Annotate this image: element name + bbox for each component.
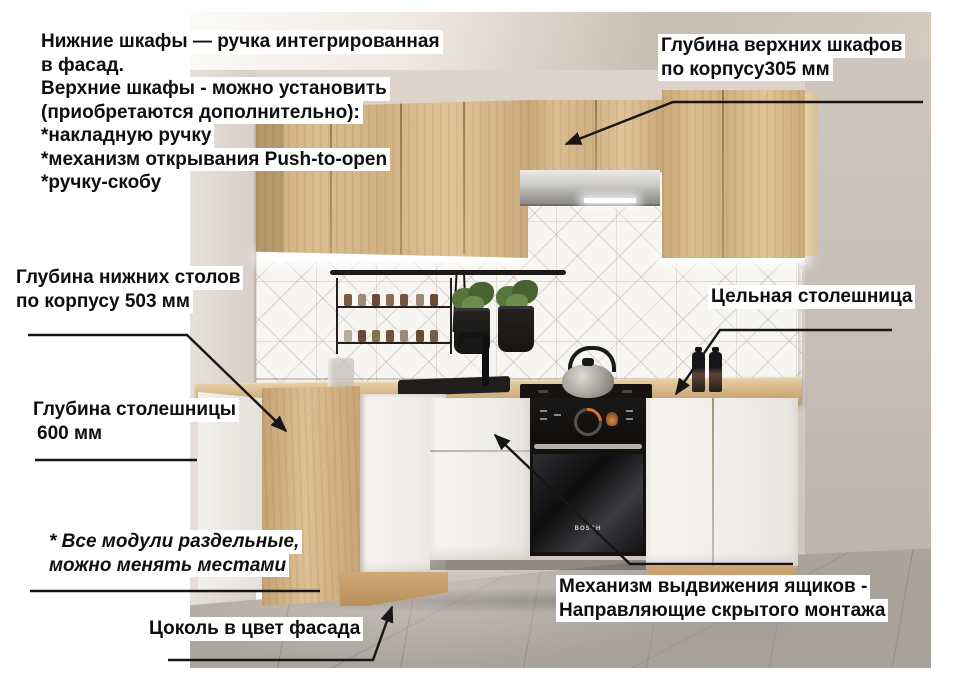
upper-cabinet-right bbox=[662, 90, 805, 258]
note-line: Цоколь в цвет фасада bbox=[146, 617, 363, 641]
note-line: Глубина нижних столов bbox=[13, 266, 243, 290]
note-countertop-depth: Глубина столешницы 600 мм bbox=[30, 398, 239, 445]
note-line: *ручку-скобу bbox=[38, 171, 164, 195]
spice-jar bbox=[416, 294, 424, 306]
wall-rail bbox=[330, 270, 566, 275]
note-line: Направляющие скрытого монтажа bbox=[556, 599, 888, 623]
note-line: можно менять местами bbox=[46, 554, 289, 578]
note-line: Верхние шкафы - можно установить bbox=[38, 77, 390, 101]
note-line: Нижние шкафы — ручка интегрированная bbox=[38, 30, 443, 54]
note-line: Механизм выдвижения ящиков - bbox=[556, 575, 870, 599]
mill-knob bbox=[712, 347, 719, 352]
oven-display-ring bbox=[568, 402, 607, 441]
annotated-kitchen-image: BOSCH Нижние шкафы — ручка интегрированн… bbox=[0, 0, 970, 686]
note-line: *накладную ручку bbox=[38, 124, 214, 148]
spice-jar bbox=[400, 294, 408, 306]
cooktop-mark bbox=[622, 390, 632, 393]
upper-cabinet-over-hood bbox=[528, 100, 662, 172]
note-solid-countertop: Цельная столешница bbox=[708, 285, 915, 309]
note-drawer-mechanism: Механизм выдвижения ящиков - Направляющи… bbox=[556, 575, 888, 622]
note-modules: * Все модули раздельные, можно менять ме… bbox=[46, 530, 302, 577]
note-line: 600 мм bbox=[34, 422, 105, 446]
note-line: * Все модули раздельные, bbox=[46, 530, 302, 554]
base-run-shadow bbox=[430, 560, 646, 570]
spice-jar bbox=[358, 294, 366, 306]
spice-jar bbox=[386, 330, 394, 342]
spice-jar bbox=[344, 330, 352, 342]
base-cabinet-right bbox=[646, 398, 798, 566]
faucet-column bbox=[482, 334, 489, 386]
note-line: по корпусу 503 мм bbox=[13, 290, 193, 314]
hanging-pot bbox=[498, 306, 534, 352]
note-plinth: Цоколь в цвет фасада bbox=[146, 617, 363, 641]
faucet-tip bbox=[458, 336, 463, 348]
spice-jar bbox=[430, 294, 438, 306]
note-line: в фасад. bbox=[38, 54, 127, 78]
note-line: Глубина верхних шкафов bbox=[658, 34, 905, 58]
kettle bbox=[562, 364, 614, 398]
door-gap bbox=[712, 398, 714, 566]
spice-jar bbox=[400, 330, 408, 342]
oven-icon bbox=[626, 418, 633, 420]
spice-jar bbox=[358, 330, 366, 342]
spice-jar bbox=[430, 330, 438, 342]
note-line: Цельная столешница bbox=[708, 285, 915, 309]
oven-brand-logo: BOSCH bbox=[533, 526, 643, 532]
spice-jar bbox=[344, 294, 352, 306]
spice-jar bbox=[372, 294, 380, 306]
oven-display-flame bbox=[606, 412, 618, 426]
oven-handle bbox=[534, 444, 642, 449]
note-base-depth: Глубина нижних столов по корпусу 503 мм bbox=[13, 266, 243, 313]
note-line: Глубина столешницы bbox=[30, 398, 239, 422]
oven: BOSCH bbox=[530, 398, 646, 556]
rack-shelf bbox=[338, 306, 450, 308]
kettle-lid bbox=[582, 358, 594, 366]
pepper-mill bbox=[692, 352, 705, 392]
drawer-unit bbox=[430, 398, 530, 560]
hood-lamp bbox=[584, 198, 636, 203]
pepper-mill bbox=[709, 352, 722, 392]
oven-door: BOSCH bbox=[533, 454, 643, 552]
oven-control-panel bbox=[530, 398, 646, 442]
oven-icon bbox=[540, 418, 547, 420]
cooktop-mark bbox=[538, 390, 548, 393]
note-line: (приобретаются дополнительно): bbox=[38, 101, 363, 125]
spice-jar bbox=[386, 294, 394, 306]
note-handles: Нижние шкафы — ручка интегрированная в ф… bbox=[38, 30, 443, 195]
door-gap bbox=[595, 100, 597, 172]
upper-cabinet-side-panel bbox=[805, 94, 818, 256]
spice-jar bbox=[372, 330, 380, 342]
oven-icon bbox=[626, 410, 633, 412]
note-line: *механизм открывания Push-to-open bbox=[38, 148, 390, 172]
right-wall bbox=[805, 60, 931, 575]
door-gap bbox=[722, 90, 724, 258]
spice-jar bbox=[416, 330, 424, 342]
rack-shelf bbox=[338, 342, 450, 344]
door-gap bbox=[463, 100, 465, 254]
mill-knob bbox=[695, 347, 702, 352]
spice-rack bbox=[336, 278, 452, 354]
oven-icon bbox=[554, 414, 561, 416]
note-upper-depth: Глубина верхних шкафов по корпусу305 мм bbox=[658, 34, 905, 81]
drawer-gap bbox=[430, 450, 530, 452]
oven-icon bbox=[540, 410, 547, 412]
note-line: по корпусу305 мм bbox=[658, 58, 833, 82]
